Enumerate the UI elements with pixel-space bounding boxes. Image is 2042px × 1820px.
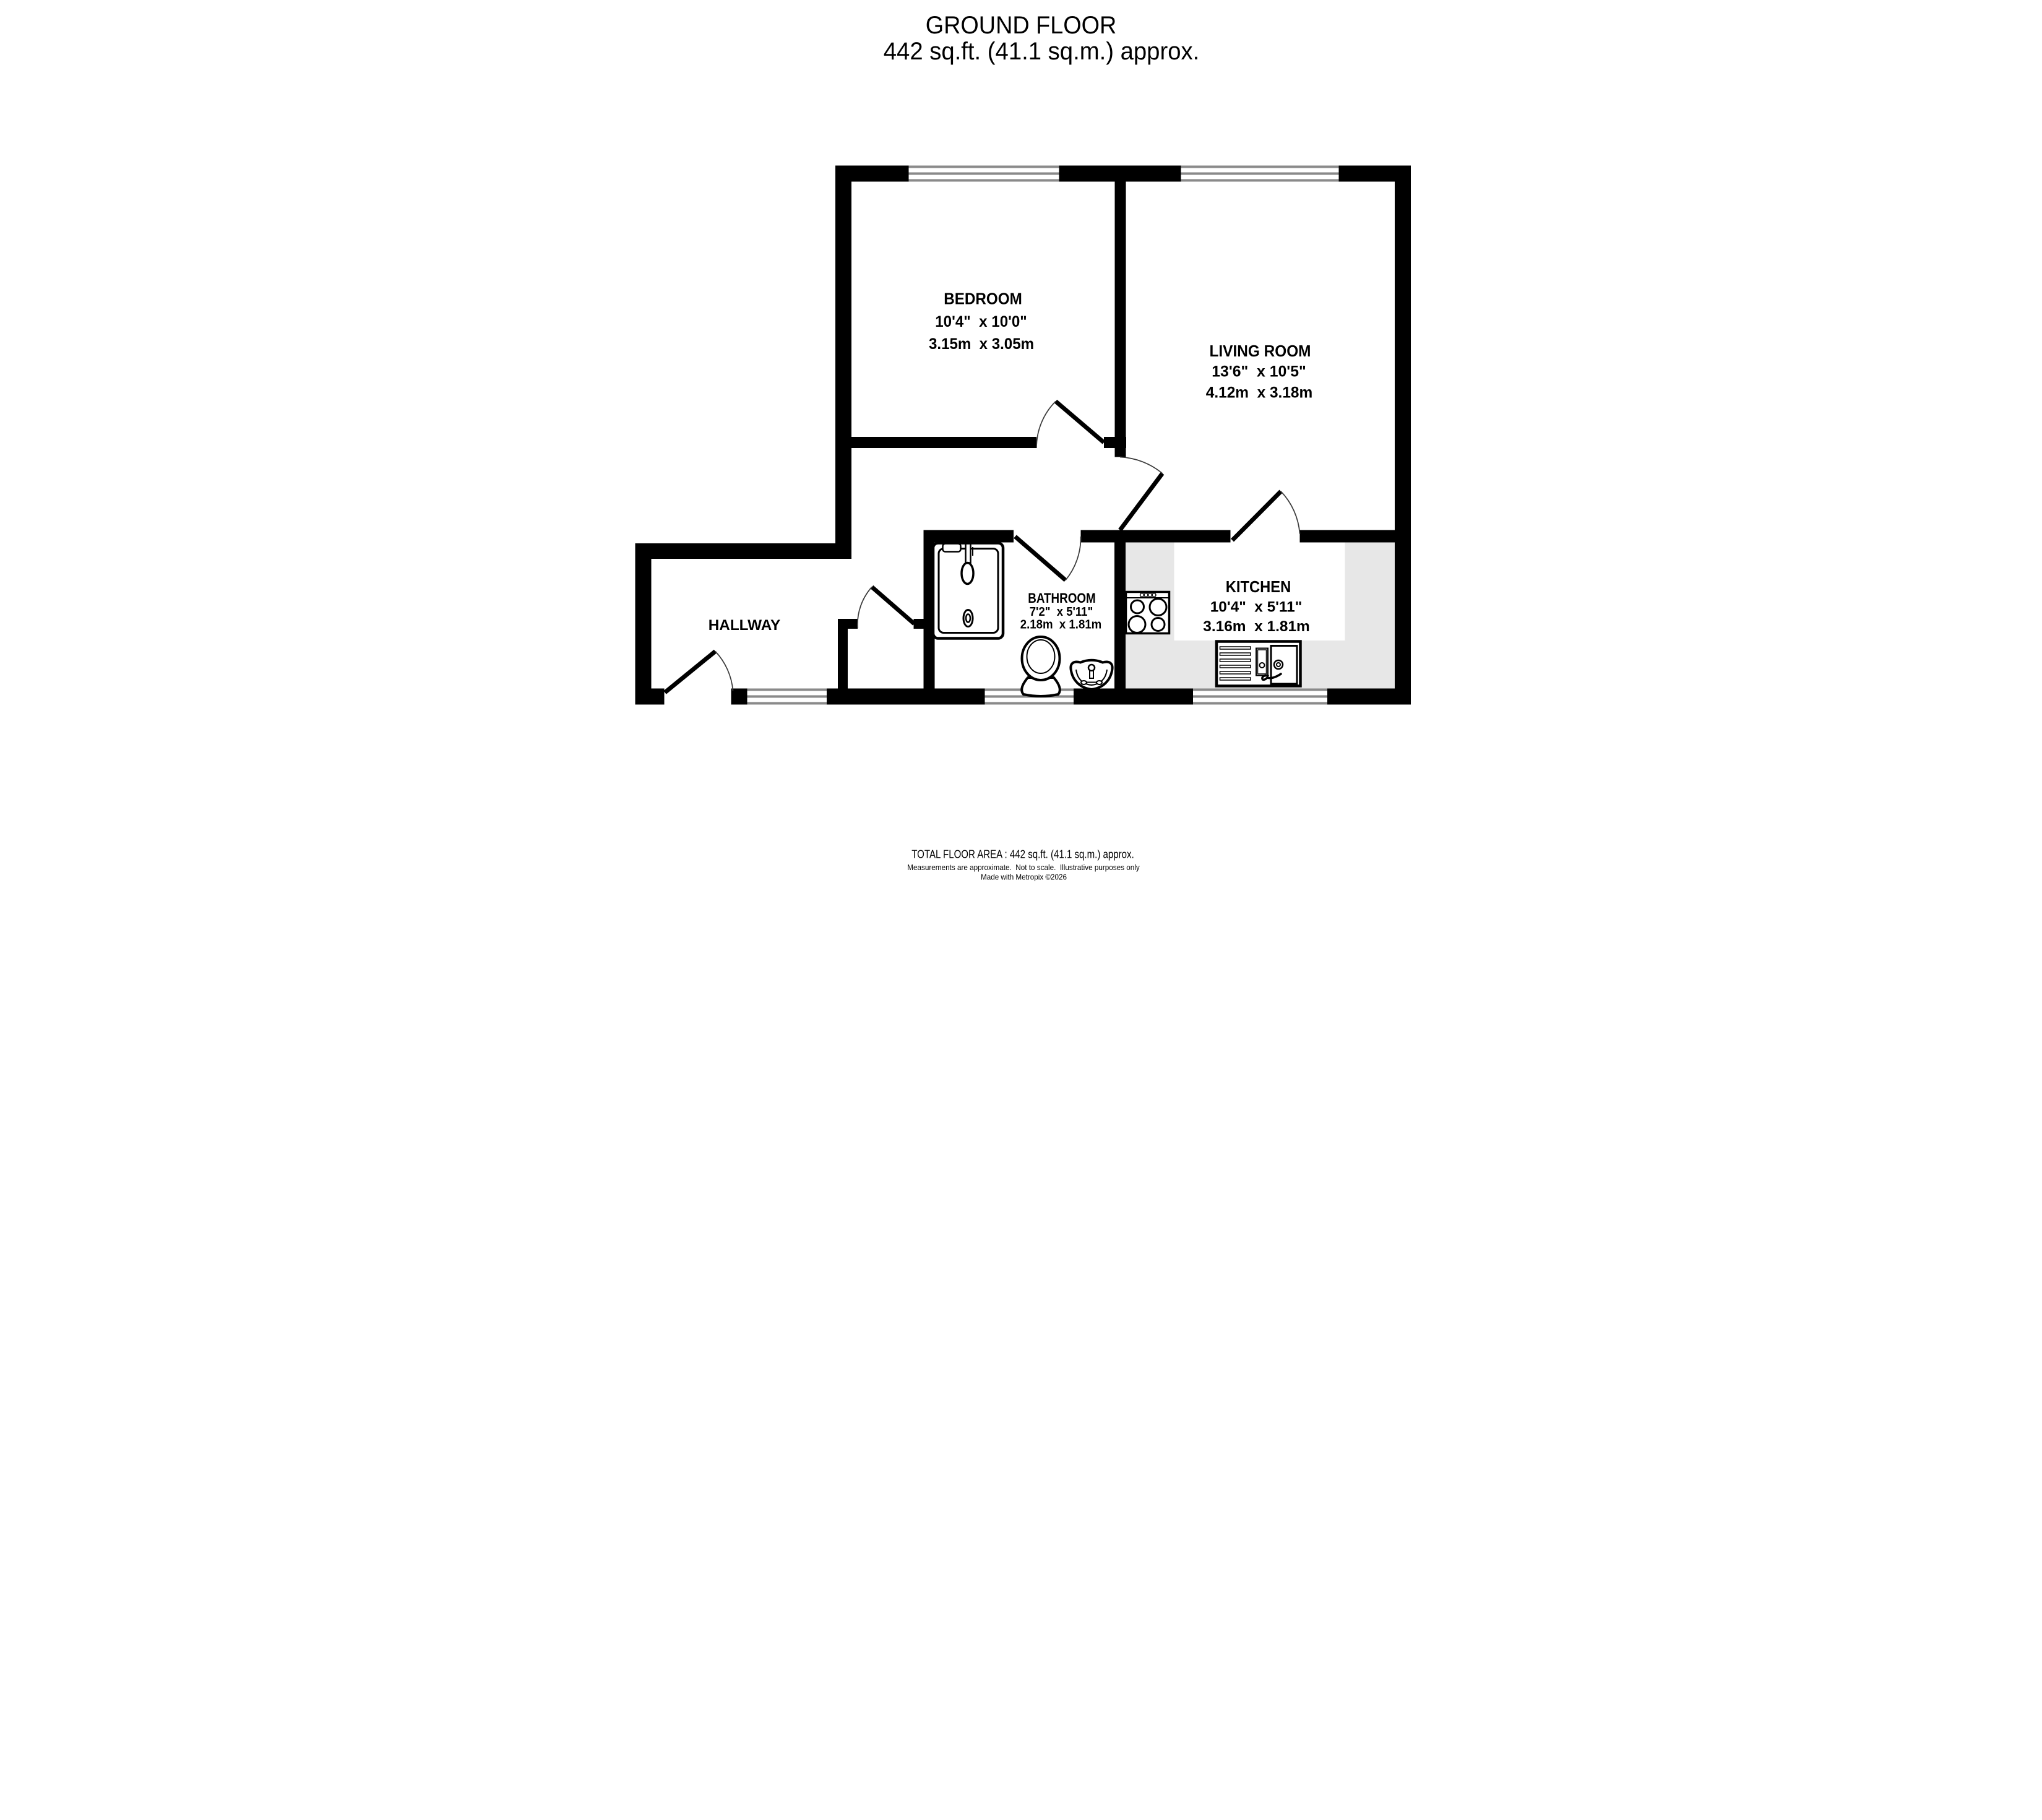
toilet-icon — [1022, 637, 1060, 696]
room-label-hallway: HALLWAY — [709, 617, 781, 634]
room-dims-metric-bathroom: 2.18m x 1.81m — [1020, 618, 1102, 632]
room-dims-metric-bedroom: 3.15m x 3.05m — [929, 335, 1034, 353]
wall-segment — [835, 166, 851, 559]
footer-disclaimer: Measurements are approximate. Not to sca… — [907, 863, 1140, 872]
room-dims-imperial-kitchen: 10'4" x 5'11" — [1210, 599, 1303, 616]
wall-segment — [838, 619, 848, 705]
wall-segment — [635, 543, 852, 559]
door-entry-icon — [665, 652, 733, 693]
wall-segment — [851, 437, 1036, 448]
room-dims-metric-kitchen: 3.16m x 1.81m — [1203, 618, 1310, 635]
room-dims-imperial-bathroom: 7'2" x 5'11" — [1030, 605, 1093, 619]
plan-footer: TOTAL FLOOR AREA : 442 sq.ft. (41.1 sq.m… — [907, 848, 1140, 882]
room-label-living-room: LIVING ROOM — [1210, 342, 1311, 360]
wall-segment — [1327, 689, 1411, 705]
wall-segment — [1115, 182, 1126, 457]
room-dims-imperial-living-room: 13'6" x 10'5" — [1212, 363, 1306, 381]
window-kitchen-icon — [1193, 689, 1327, 705]
wall-segment — [1059, 166, 1181, 182]
wall-segment — [1114, 543, 1126, 705]
window-living-room-icon — [1181, 166, 1339, 182]
basin-icon — [1071, 660, 1112, 689]
wall-segment — [1081, 530, 1231, 543]
plan-title: GROUND FLOOR 442 sq.ft. (41.1 sq.m.) app… — [884, 12, 1200, 65]
wall-segment — [1074, 689, 1193, 705]
footer-total-area: TOTAL FLOOR AREA : 442 sq.ft. (41.1 sq.m… — [911, 848, 1134, 861]
wall-segment — [827, 689, 985, 705]
wall-segment — [731, 689, 747, 705]
wall-segment — [914, 619, 924, 629]
wall-segment — [1300, 530, 1395, 543]
wall-segment — [838, 619, 858, 629]
wall-segment — [635, 543, 652, 705]
wall-segment — [635, 689, 665, 705]
wall-segment — [1395, 166, 1411, 705]
floor-plan-svg: GROUND FLOOR 442 sq.ft. (41.1 sq.m.) app… — [510, 0, 1531, 910]
shower-icon — [933, 543, 1003, 639]
title-floor: GROUND FLOOR — [926, 12, 1117, 39]
door-cupboard-icon — [858, 587, 915, 629]
room-label-bedroom: BEDROOM — [944, 290, 1022, 308]
room-dims-imperial-bedroom: 10'4" x 10'0" — [935, 313, 1027, 330]
floor-plan-page: GROUND FLOOR 442 sq.ft. (41.1 sq.m.) app… — [510, 0, 1531, 910]
door-bathroom-icon — [1015, 537, 1081, 580]
door-bedroom-icon — [1036, 402, 1104, 449]
window-hallway-icon — [747, 689, 827, 705]
door-kitchen-icon — [1233, 491, 1300, 540]
door-living-room-icon — [1120, 457, 1163, 530]
room-label-kitchen: KITCHEN — [1226, 577, 1291, 596]
stove-icon — [1126, 592, 1170, 634]
wall-segment — [924, 530, 1014, 543]
sink-icon — [1217, 642, 1301, 686]
window-bedroom-icon — [909, 166, 1059, 182]
footer-credit: Made with Metropix ©2026 — [981, 873, 1067, 882]
title-area: 442 sq.ft. (41.1 sq.m.) approx. — [884, 38, 1200, 65]
room-label-bathroom: BATHROOM — [1028, 590, 1096, 606]
room-dims-metric-living-room: 4.12m x 3.18m — [1206, 384, 1313, 402]
